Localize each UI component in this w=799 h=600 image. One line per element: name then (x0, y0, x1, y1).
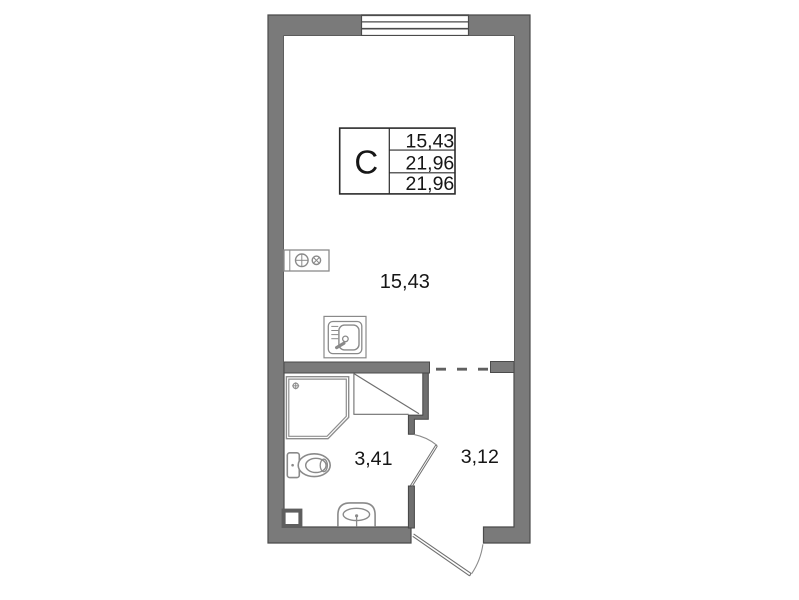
svg-text:15,43: 15,43 (380, 271, 430, 293)
svg-text:15,43: 15,43 (405, 131, 454, 153)
svg-text:21,96: 21,96 (405, 153, 454, 175)
svg-text:С: С (354, 143, 378, 180)
svg-text:21,96: 21,96 (405, 173, 454, 195)
svg-text:3,12: 3,12 (461, 446, 499, 468)
svg-text:3,41: 3,41 (354, 448, 392, 470)
